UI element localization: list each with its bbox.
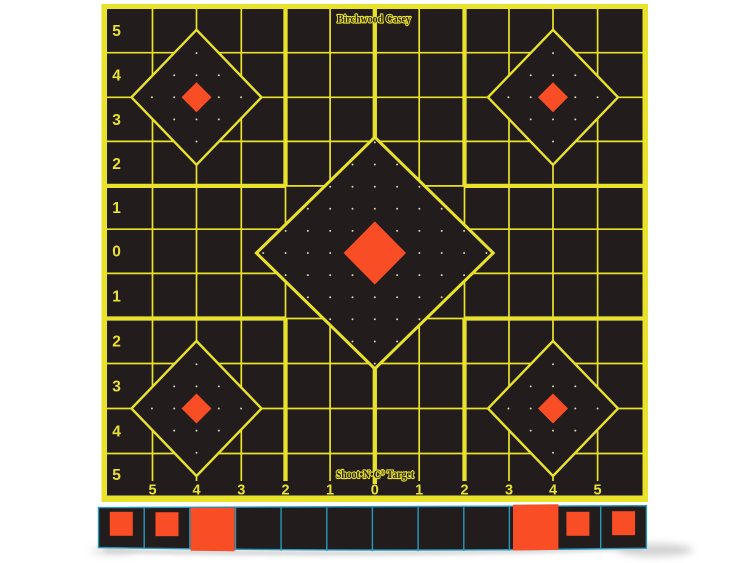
svg-text:2: 2: [281, 482, 289, 498]
svg-text:1: 1: [112, 288, 121, 305]
svg-text:Shoot•N•C® Target: Shoot•N•C® Target: [336, 467, 414, 481]
svg-text:5: 5: [148, 482, 156, 498]
svg-text:5: 5: [112, 467, 121, 484]
svg-text:3: 3: [112, 378, 121, 395]
svg-text:0: 0: [371, 482, 379, 498]
svg-text:1: 1: [415, 482, 423, 498]
svg-text:4: 4: [112, 67, 121, 84]
svg-text:5: 5: [112, 23, 121, 40]
svg-text:2: 2: [112, 156, 121, 173]
svg-text:1: 1: [112, 200, 121, 217]
svg-text:1: 1: [326, 482, 334, 498]
svg-text:3: 3: [112, 112, 121, 129]
svg-text:3: 3: [505, 482, 513, 498]
svg-text:4: 4: [192, 482, 200, 498]
svg-text:5: 5: [594, 482, 602, 498]
svg-text:4: 4: [112, 423, 121, 440]
svg-text:2: 2: [112, 333, 121, 350]
svg-text:3: 3: [237, 482, 245, 498]
svg-text:Birchwood Casey: Birchwood Casey: [337, 12, 411, 26]
svg-text:2: 2: [460, 482, 468, 498]
svg-text:4: 4: [549, 482, 557, 498]
svg-text:0: 0: [112, 244, 121, 261]
